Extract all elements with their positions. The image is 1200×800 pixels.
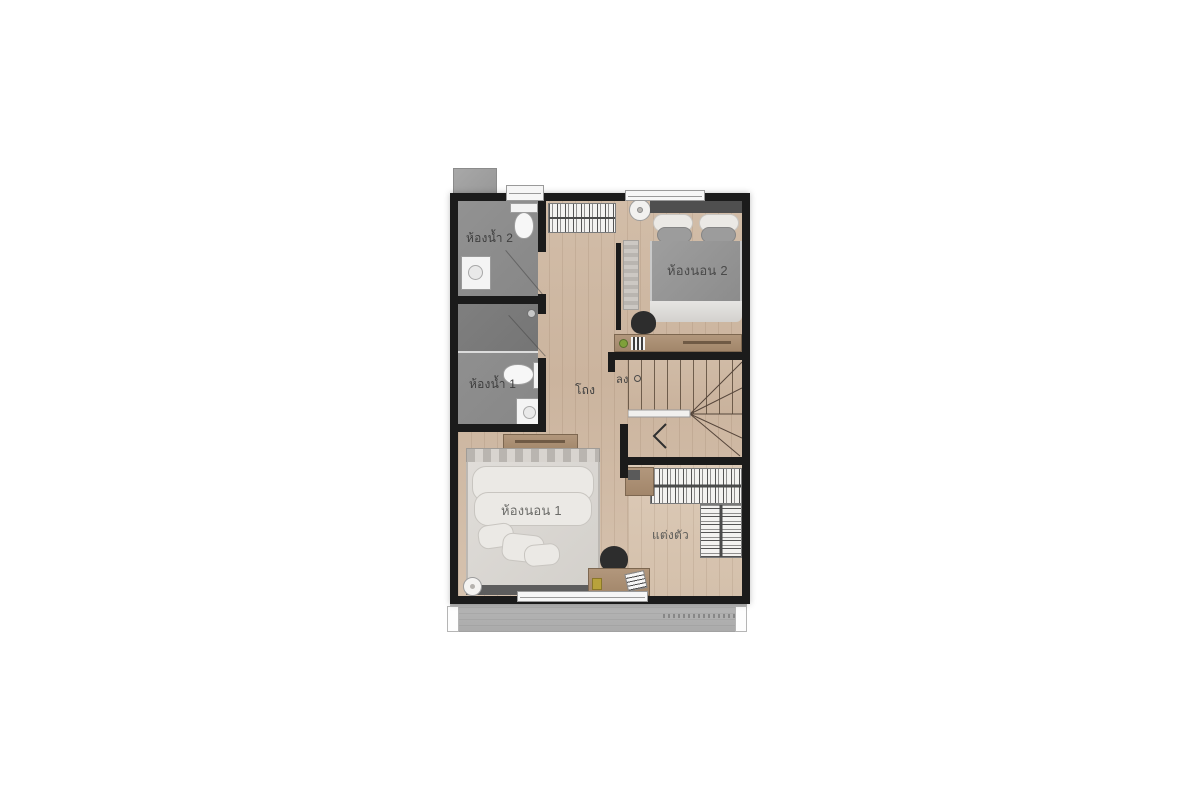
balcony-post-right [735,606,747,632]
dresser-handle-line [515,440,565,443]
toilet-icon-bathroom2 [514,212,534,239]
room-label-bedroom1: ห้องนอน 1 [501,500,562,521]
balcony-texture-marks [663,614,741,618]
hamper-center-dot [470,584,475,589]
stairs-winder-lines [628,358,742,459]
desk2-plant-icon [619,339,628,348]
wardrobe-dressing-right [700,504,742,558]
wall-bathroom1-bottom [458,424,546,432]
side-table-lamp [637,207,643,213]
bed2-headboard [650,201,742,213]
ac-ledge [453,168,497,195]
room-label-bathroom1: ห้องน้ำ 1 [469,375,516,394]
shower-head-icon [527,309,536,318]
window-bedroom2 [625,190,705,201]
stairs-direction-dot [634,375,641,382]
wall-stub-hall [608,352,615,372]
wall-between-bathrooms [458,296,546,304]
wall-bath-hall-upper [538,201,546,252]
stairs-arrow-icon [654,424,666,448]
vanity-stool [628,470,640,480]
desk2-drawer-line [683,341,731,344]
room-label-dressing: แต่งตัว [652,526,689,545]
bed2-sheet-fold [650,301,742,322]
floor-plan-page: ห้องน้ำ 2 ห้องน้ำ 1 ห้องนอน 2 ห้องนอน 1 … [0,0,1200,800]
wardrobe-hall [548,203,616,233]
shower-area [458,304,538,353]
wall-bedroom2-bottom [608,352,750,360]
wall-bedroom2-left [616,243,621,330]
sink-basin-bathroom2 [468,265,483,280]
bed2-side-runner [623,240,639,310]
stairs-down-label: ลง [616,370,629,388]
wardrobe-dressing-top [650,468,742,504]
window-bedroom1-balcony [517,591,648,602]
desk-chair-bedroom2 [631,311,656,334]
bed1-foot-pillow-3 [523,542,561,567]
room-label-bathroom2: ห้องน้ำ 2 [466,229,513,248]
room-label-hall: โถง [575,381,595,400]
window-bathroom2 [506,185,544,201]
room-label-bedroom2: ห้องนอน 2 [667,260,728,281]
wall-stairs-bottom [628,457,750,465]
sink-basin-bathroom1 [523,406,536,419]
balcony-post-left [447,606,459,632]
wall-bath-hall-lower [538,358,546,432]
desk2-books [631,337,645,350]
wall-stairs-left [620,424,628,478]
desk1-item-yellow [592,578,602,590]
